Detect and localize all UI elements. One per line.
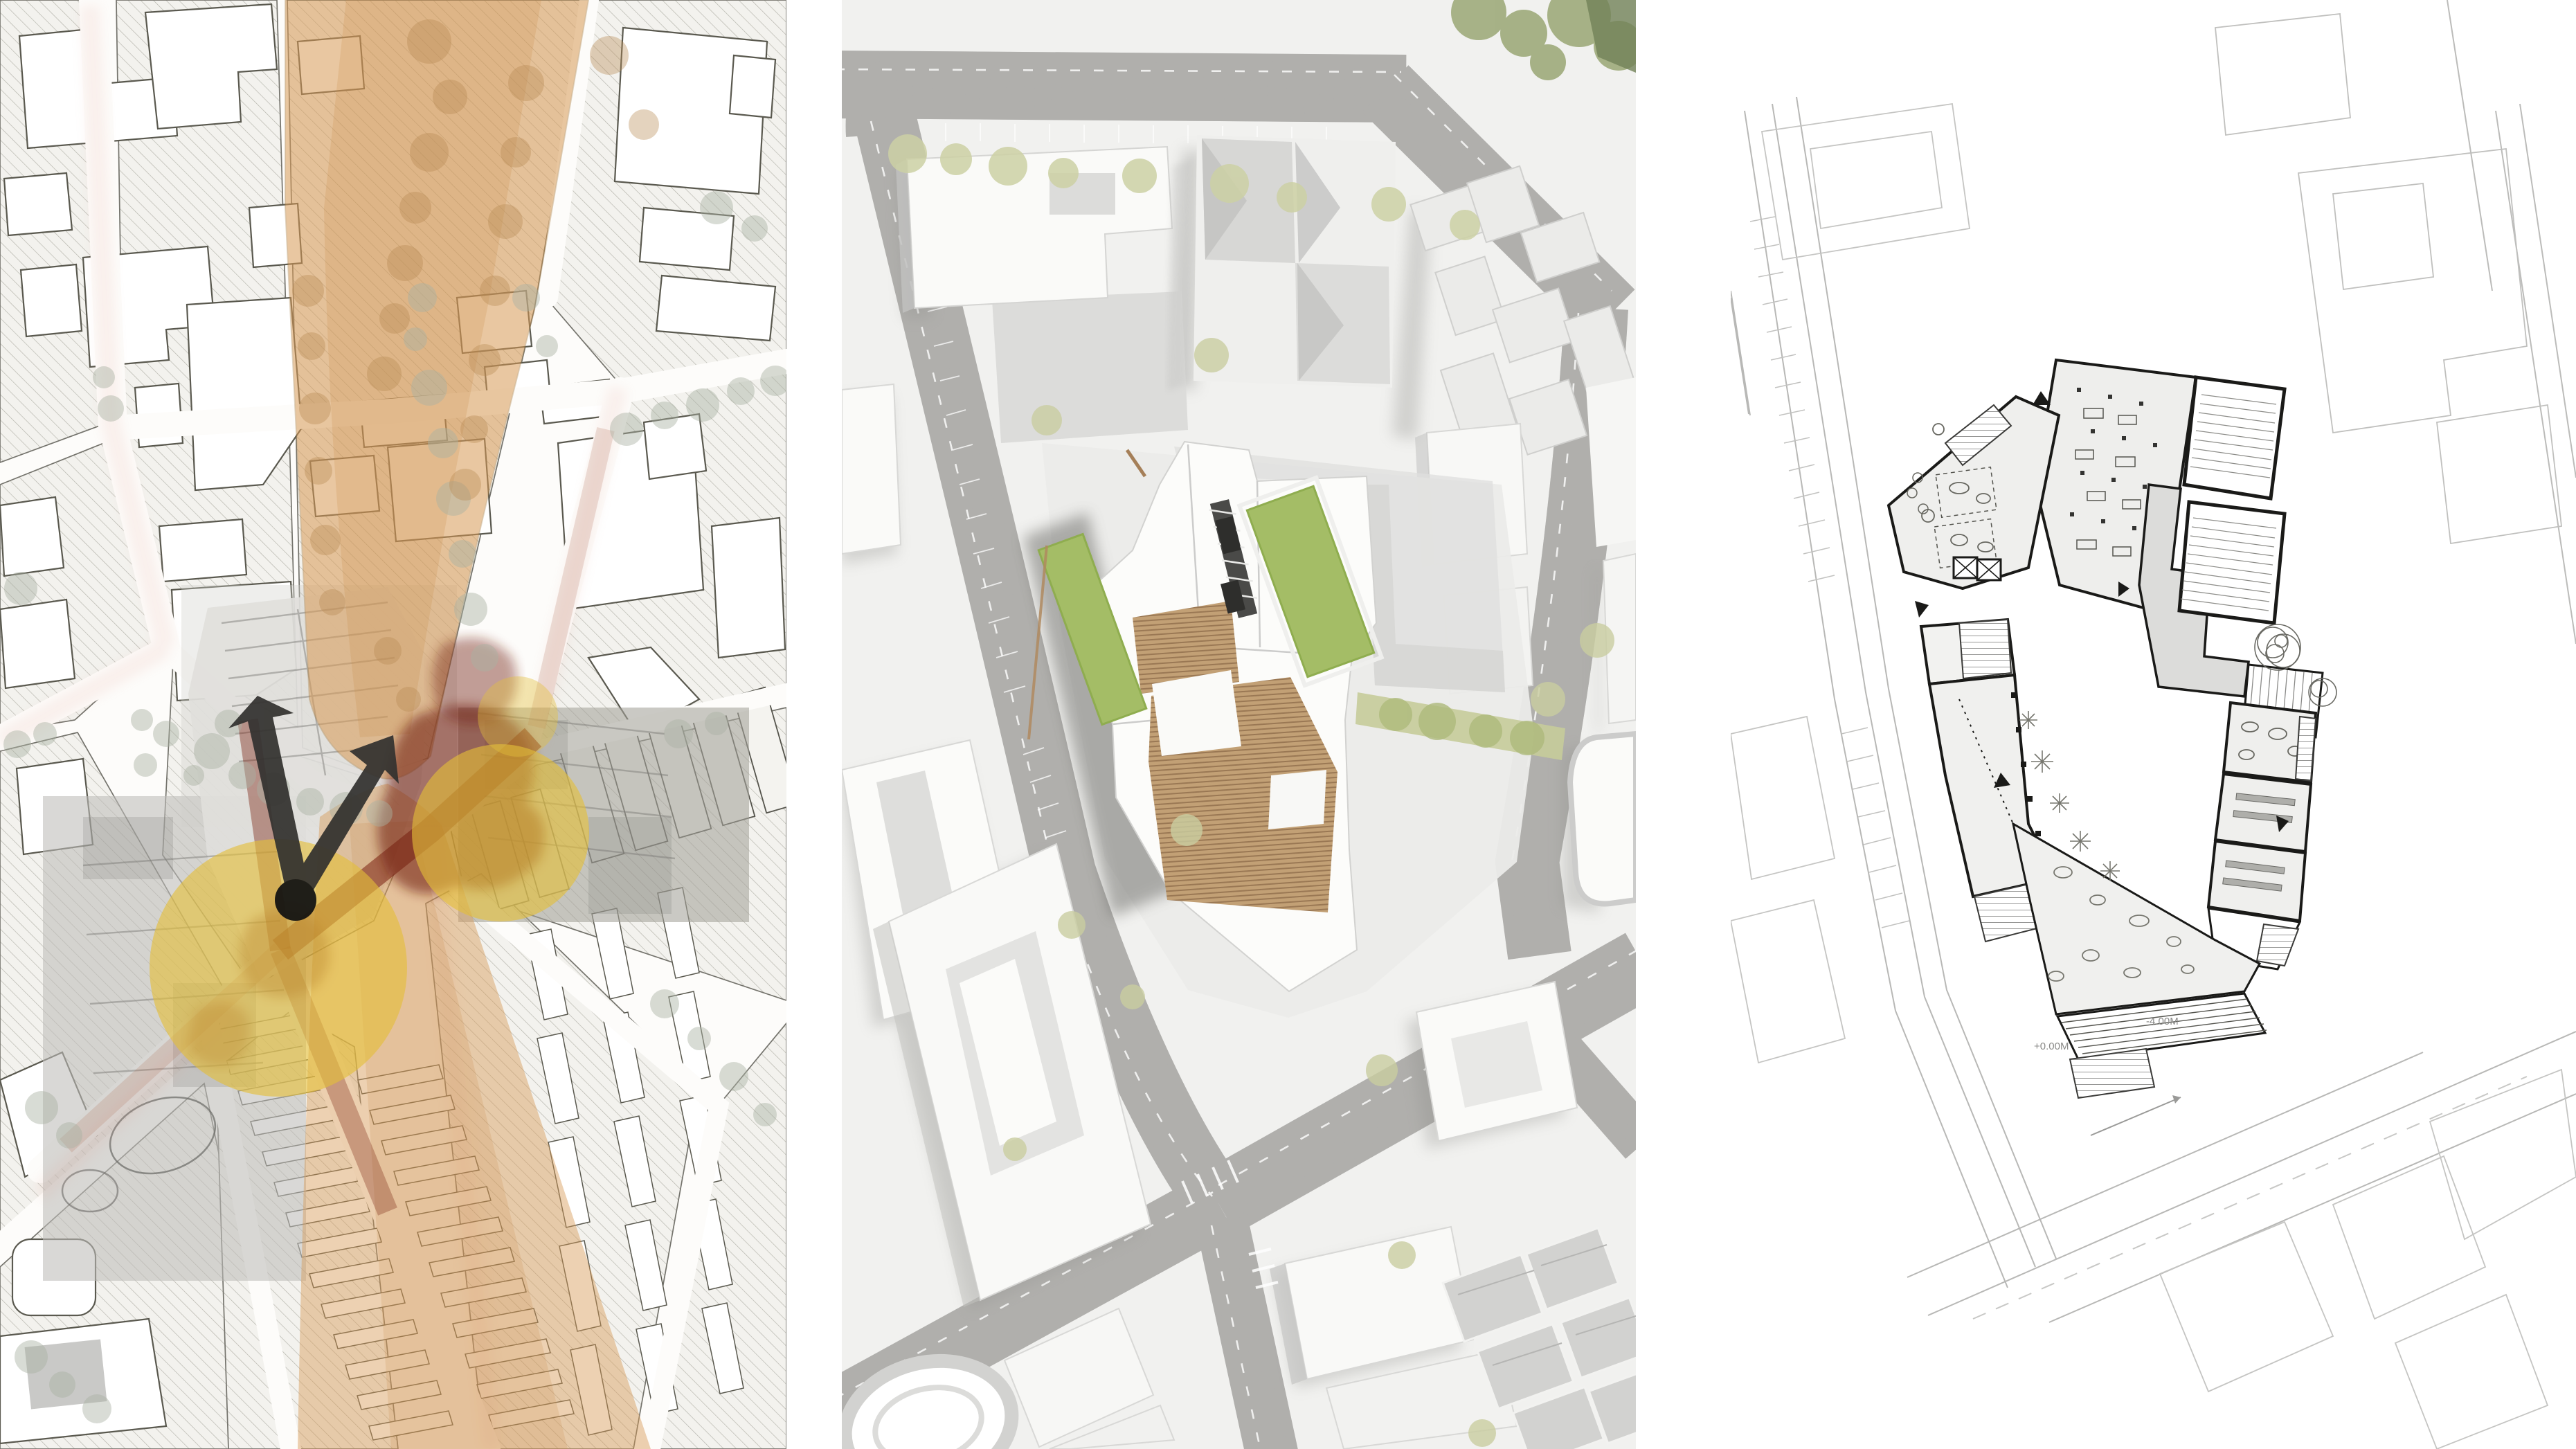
svg-text:+0.00M: +0.00M: [2034, 1041, 2069, 1052]
svg-text:-4.00M: -4.00M: [2146, 1016, 2179, 1027]
